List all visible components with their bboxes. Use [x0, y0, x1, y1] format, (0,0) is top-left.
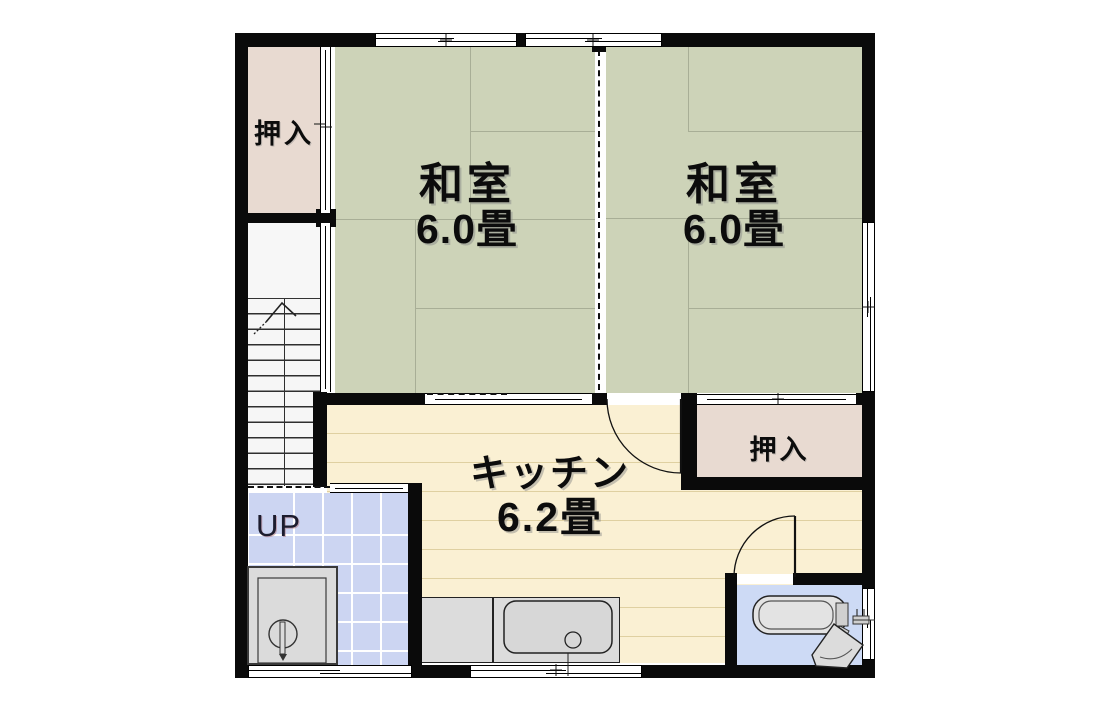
wall-segment — [412, 665, 470, 678]
doorway-washitsu-kitchen — [607, 393, 681, 405]
kitchen-counter — [420, 597, 620, 663]
wall-segment — [235, 33, 375, 47]
wall-segment — [662, 33, 875, 47]
tatami-line — [415, 308, 599, 309]
doorway-bathroom — [737, 574, 793, 584]
sliding-door-hall-washitsu — [320, 223, 331, 392]
window — [375, 33, 517, 47]
wall-segment — [313, 392, 327, 487]
wall-segment — [856, 393, 875, 405]
room-name: 和室 — [606, 163, 862, 208]
tatami-line — [688, 47, 689, 131]
wall-segment — [235, 33, 248, 678]
sliding-door-closet-upper — [320, 47, 331, 213]
wall-segment — [235, 213, 322, 223]
room-label-washitsu-right: 和室 6.0畳 — [606, 163, 862, 251]
wall-segment — [862, 33, 875, 222]
wall-segment — [517, 33, 525, 47]
room-label-closet-upper: 押入 — [248, 112, 320, 151]
floor-hall — [248, 223, 322, 298]
tatami-line — [688, 308, 862, 309]
room-size: 6.0畳 — [606, 208, 862, 251]
floor-plan: 和室 6.0畳 和室 6.0畳 キッチン 6.2畳 押入 押入 UP — [0, 0, 1104, 707]
sliding-door-dashed — [427, 393, 507, 395]
wall-segment — [235, 665, 248, 678]
wall-segment — [327, 393, 425, 405]
sliding-door-washroom — [330, 483, 408, 493]
window — [525, 33, 662, 47]
wall-segment — [681, 477, 875, 490]
stairs-up-label: UP — [256, 508, 301, 544]
room-size: 6.0畳 — [335, 208, 599, 251]
window — [862, 588, 875, 660]
stairs — [248, 298, 322, 486]
wall-segment — [725, 573, 737, 665]
room-label-washitsu-left: 和室 6.0畳 — [335, 163, 599, 251]
window — [248, 665, 412, 678]
tatami-line — [688, 131, 862, 132]
room-name: キッチン — [420, 455, 680, 495]
window — [862, 222, 875, 392]
wall-segment — [862, 392, 875, 588]
kitchen-counter-divider — [492, 597, 494, 663]
room-name: 和室 — [335, 163, 599, 208]
floor-bathroom — [737, 585, 862, 665]
wall-segment — [642, 665, 875, 678]
room-label-closet-middle: 押入 — [697, 428, 862, 467]
room-label-kitchen: キッチン 6.2畳 — [420, 455, 680, 540]
wall-segment — [681, 393, 697, 490]
window — [470, 665, 642, 678]
room-size: 6.2畳 — [420, 495, 680, 540]
wall-segment — [793, 573, 875, 585]
stairs-washroom-boundary — [248, 486, 330, 488]
sliding-door-closet-middle — [697, 394, 856, 405]
tatami-line — [470, 131, 599, 132]
wall-segment — [592, 393, 608, 405]
